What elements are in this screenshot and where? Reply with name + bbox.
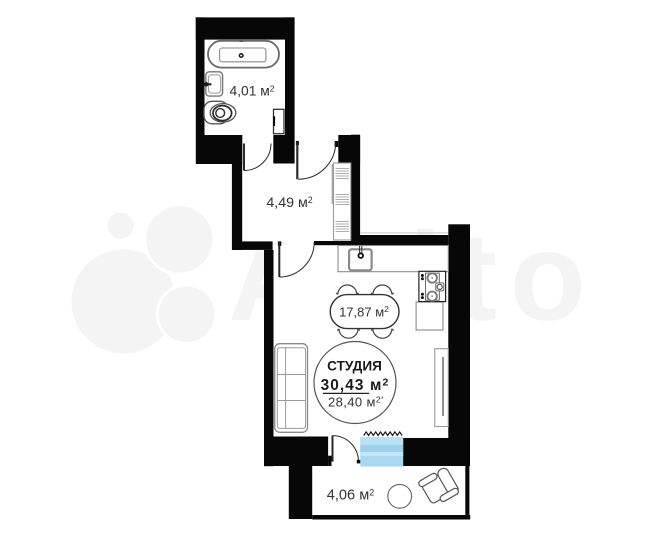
- svg-text:4,01 м2: 4,01 м2: [230, 84, 275, 99]
- svg-text:4,49 м2: 4,49 м2: [266, 195, 312, 211]
- svg-text:СТУДИЯ: СТУДИЯ: [327, 359, 382, 374]
- svg-text:4,06 м2: 4,06 м2: [327, 487, 375, 503]
- svg-text:28,40 м2*: 28,40 м2*: [328, 394, 384, 409]
- svg-text:30,43 м2: 30,43 м2: [321, 377, 390, 395]
- svg-text:17,87 м2: 17,87 м2: [339, 304, 389, 319]
